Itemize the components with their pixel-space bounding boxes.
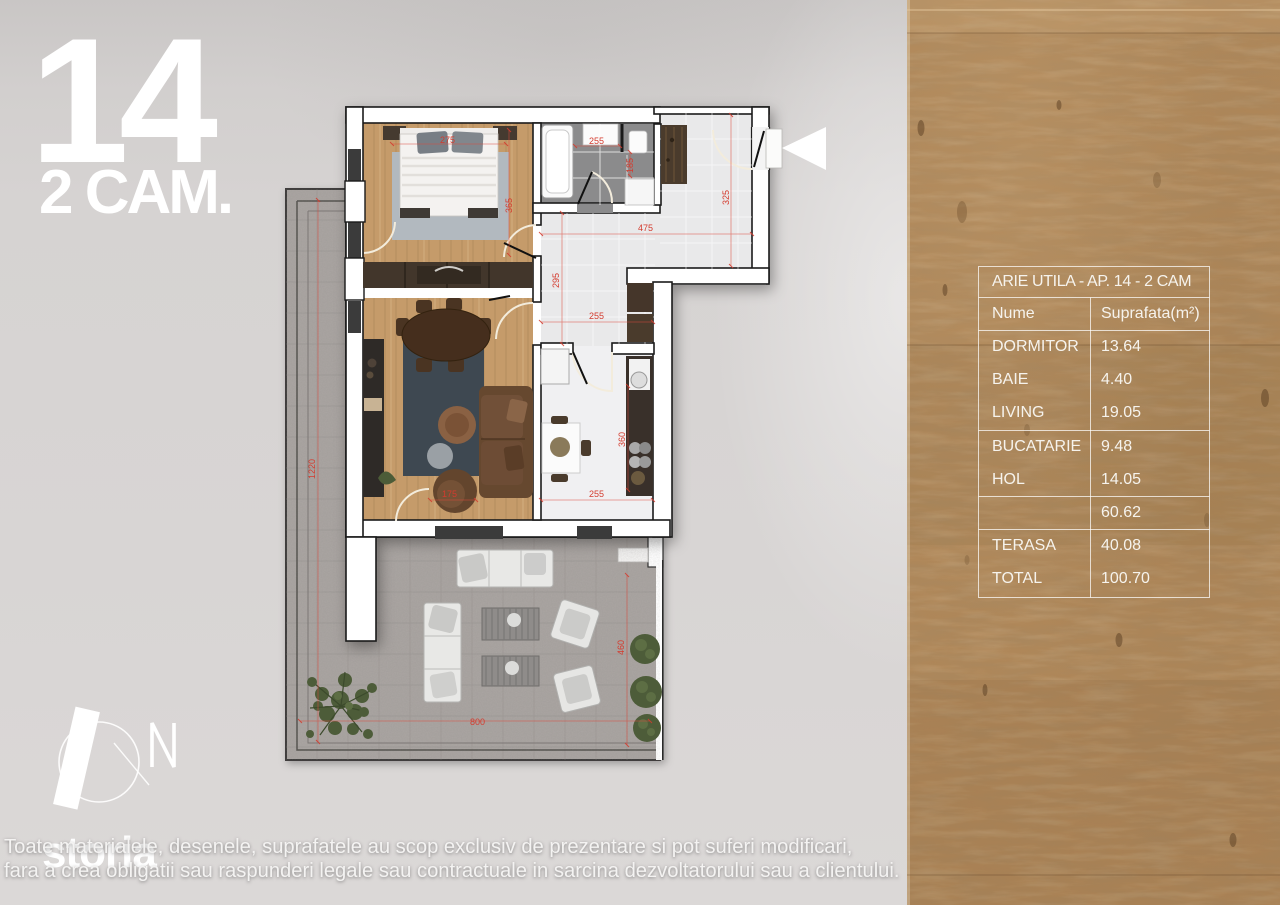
svg-text:360: 360 [617, 432, 627, 447]
svg-text:255: 255 [589, 489, 604, 499]
svg-text:325: 325 [721, 190, 731, 205]
svg-text:255: 255 [589, 136, 604, 146]
svg-text:295: 295 [551, 273, 561, 288]
svg-text:365: 365 [504, 198, 514, 213]
svg-text:275: 275 [440, 135, 455, 145]
svg-text:1220: 1220 [307, 459, 317, 479]
svg-text:175: 175 [442, 489, 457, 499]
svg-text:475: 475 [638, 223, 653, 233]
svg-text:185: 185 [625, 158, 635, 173]
svg-text:460: 460 [616, 640, 626, 655]
svg-text:800: 800 [470, 717, 485, 727]
svg-text:255: 255 [589, 311, 604, 321]
